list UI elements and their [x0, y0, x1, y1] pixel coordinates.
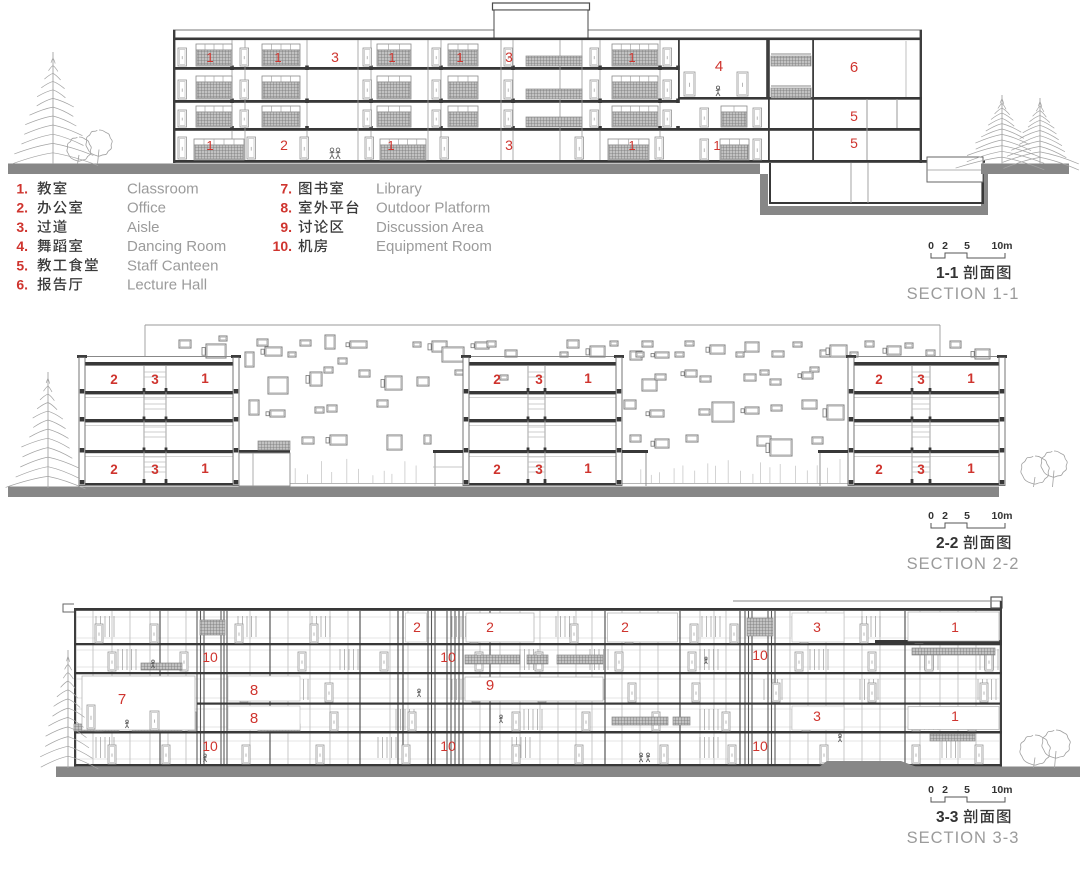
svg-text:1: 1	[584, 461, 592, 476]
svg-text:1: 1	[206, 138, 213, 153]
svg-text:2: 2	[110, 372, 118, 387]
svg-text:10m: 10m	[991, 240, 1012, 252]
svg-text:7: 7	[118, 691, 126, 708]
svg-text:5.: 5.	[16, 257, 28, 273]
svg-text:3: 3	[505, 49, 513, 65]
svg-text:2: 2	[942, 240, 948, 252]
svg-text:1: 1	[967, 371, 975, 386]
svg-text:2: 2	[875, 372, 883, 387]
svg-text:1: 1	[456, 50, 463, 65]
svg-text:10.: 10.	[273, 238, 292, 254]
svg-text:Lecture Hall: Lecture Hall	[127, 277, 207, 294]
svg-text:5: 5	[850, 108, 858, 124]
svg-text:5: 5	[964, 240, 970, 252]
svg-text:10: 10	[440, 649, 456, 665]
svg-text:0: 0	[928, 510, 934, 522]
svg-text:2: 2	[942, 510, 948, 522]
svg-text:3.: 3.	[16, 219, 28, 235]
svg-text:2: 2	[621, 619, 629, 635]
svg-text:1.: 1.	[16, 181, 28, 197]
svg-text:3: 3	[151, 462, 159, 477]
svg-text:6.: 6.	[16, 277, 28, 293]
svg-text:8: 8	[250, 682, 258, 699]
svg-text:6: 6	[850, 59, 858, 76]
svg-text:3: 3	[505, 137, 513, 153]
svg-text:1: 1	[387, 138, 394, 153]
svg-text:Staff Canteen: Staff Canteen	[127, 257, 218, 274]
svg-text:1: 1	[274, 50, 281, 65]
svg-text:Equipment Room: Equipment Room	[376, 238, 492, 255]
svg-text:3: 3	[917, 462, 925, 477]
svg-text:5: 5	[850, 135, 858, 151]
svg-text:3: 3	[535, 372, 543, 387]
svg-text:Dancing Room: Dancing Room	[127, 238, 226, 255]
svg-text:3: 3	[535, 462, 543, 477]
svg-text:2: 2	[413, 619, 421, 635]
svg-text:10: 10	[202, 738, 218, 754]
svg-text:1: 1	[206, 50, 213, 65]
svg-text:9: 9	[486, 677, 494, 694]
svg-text:2: 2	[486, 619, 494, 635]
svg-text:10m: 10m	[991, 510, 1012, 522]
svg-text:10: 10	[752, 738, 768, 754]
svg-text:2: 2	[942, 784, 948, 796]
svg-text:1: 1	[584, 371, 592, 386]
svg-text:1: 1	[201, 461, 209, 476]
svg-text:1: 1	[951, 708, 959, 724]
svg-text:10: 10	[752, 647, 768, 663]
svg-text:4.: 4.	[16, 238, 28, 254]
svg-text:2: 2	[493, 462, 501, 477]
svg-text:2: 2	[493, 372, 501, 387]
svg-text:8.: 8.	[280, 200, 292, 216]
svg-text:SECTION 3-3: SECTION 3-3	[907, 829, 1020, 847]
svg-text:3: 3	[813, 708, 821, 724]
svg-text:Library: Library	[376, 181, 422, 198]
svg-text:Aisle: Aisle	[127, 219, 160, 236]
svg-text:1: 1	[628, 138, 635, 153]
svg-text:2-2: 2-2	[936, 535, 958, 552]
svg-text:3: 3	[151, 372, 159, 387]
svg-text:10: 10	[440, 738, 456, 754]
svg-text:1: 1	[628, 50, 635, 65]
svg-text:1: 1	[951, 619, 959, 635]
svg-text:8: 8	[250, 710, 258, 727]
svg-text:3: 3	[813, 619, 821, 635]
svg-text:1: 1	[713, 138, 720, 153]
svg-text:3: 3	[917, 372, 925, 387]
svg-text:2: 2	[110, 462, 118, 477]
svg-text:Outdoor Platform: Outdoor Platform	[376, 200, 490, 217]
svg-text:Office: Office	[127, 200, 166, 217]
svg-text:5: 5	[964, 510, 970, 522]
svg-text:2: 2	[280, 137, 288, 153]
svg-text:1: 1	[201, 371, 209, 386]
svg-text:9.: 9.	[280, 219, 292, 235]
svg-text:1: 1	[388, 50, 395, 65]
svg-text:4: 4	[715, 58, 723, 75]
svg-text:2: 2	[875, 462, 883, 477]
svg-text:2.: 2.	[16, 200, 28, 216]
svg-text:Classroom: Classroom	[127, 181, 199, 198]
svg-text:1: 1	[967, 461, 975, 476]
svg-text:7.: 7.	[280, 181, 292, 197]
svg-text:Discussion Area: Discussion Area	[376, 219, 484, 236]
svg-text:SECTION 2-2: SECTION 2-2	[907, 555, 1020, 573]
svg-text:SECTION 1-1: SECTION 1-1	[907, 285, 1020, 303]
svg-text:5: 5	[964, 784, 970, 796]
svg-text:0: 0	[928, 240, 934, 252]
svg-text:10: 10	[202, 649, 218, 665]
svg-text:0: 0	[928, 784, 934, 796]
svg-text:3-3: 3-3	[936, 809, 959, 826]
svg-text:1-1: 1-1	[936, 265, 959, 282]
svg-text:3: 3	[331, 49, 339, 65]
svg-text:10m: 10m	[991, 784, 1012, 796]
